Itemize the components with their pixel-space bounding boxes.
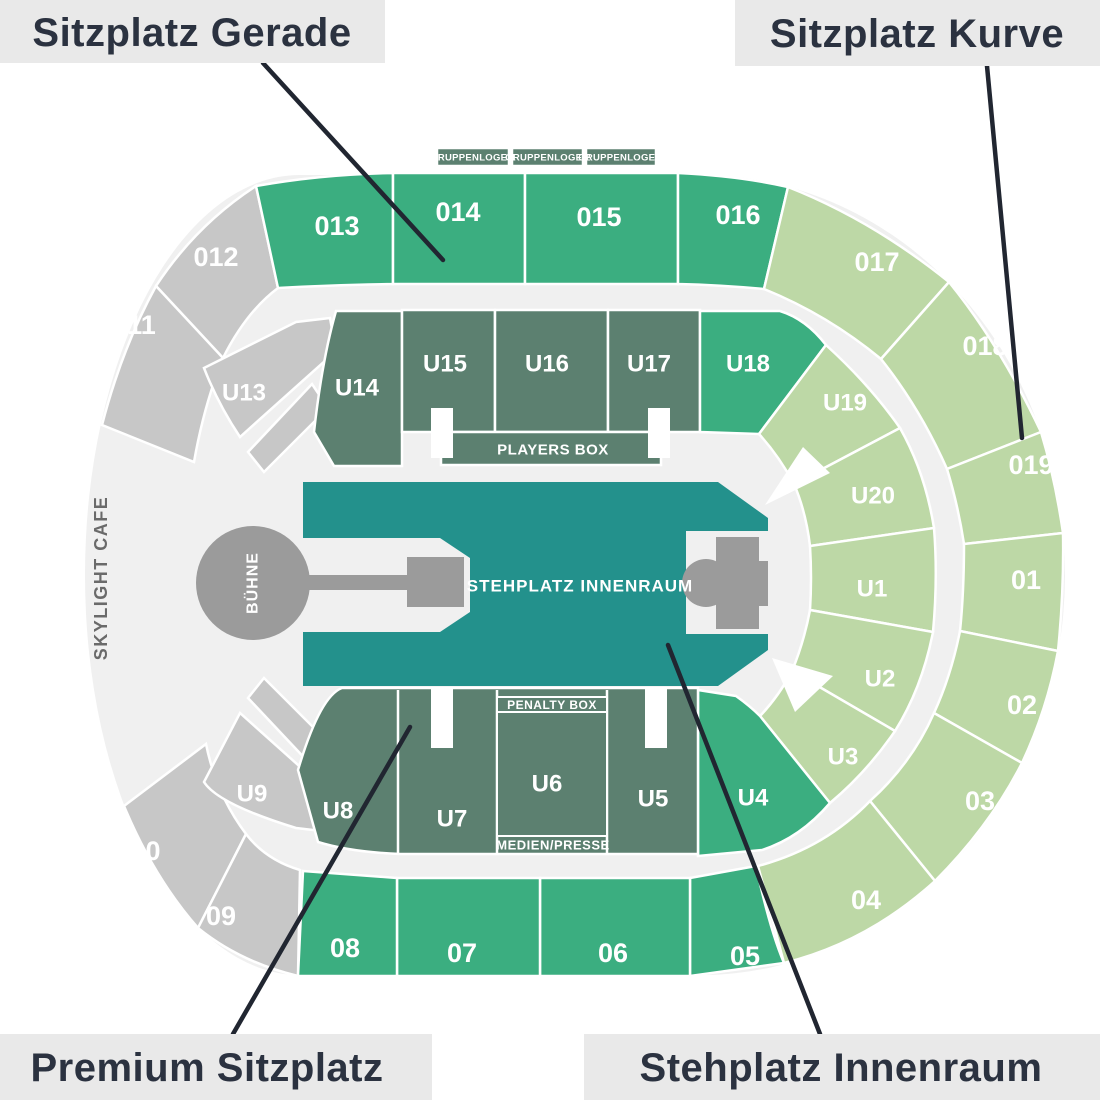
- vomitory-notch-top-left: [431, 408, 453, 458]
- section-012-label: 012: [193, 242, 238, 272]
- gruppenloge-3-label: GRUPPENLOGE 3: [578, 153, 664, 164]
- section-014-label: 014: [435, 197, 480, 227]
- stage-platform: [407, 557, 464, 607]
- section-U5-label: U5: [638, 786, 669, 813]
- section-U18-label: U18: [726, 351, 770, 378]
- section-U15-label: U15: [423, 351, 467, 378]
- section-U4-label: U4: [738, 785, 769, 812]
- legend-top-left-label: Sitzplatz Gerade: [32, 11, 351, 55]
- buehne-label: BÜHNE: [243, 552, 262, 614]
- section-U7-label: U7: [437, 806, 468, 833]
- players-box-label: PLAYERS BOX: [497, 442, 609, 459]
- medien-presse-label: MEDIEN/PRESSE: [496, 838, 609, 853]
- section-U9-label: U9: [237, 781, 268, 808]
- stehplatz-innenraum-label: STEHPLATZ INNENRAUM: [467, 577, 693, 596]
- section-U3-label: U3: [828, 744, 859, 771]
- gruppenloge-1-label: GRUPPENLOGE 1: [430, 153, 516, 164]
- section-01-label: 01: [1011, 565, 1041, 595]
- arena-seating-map: GRUPPENLOGE 1 GRUPPENLOGE 2 GRUPPENLOGE …: [0, 0, 1100, 1100]
- section-U13-label: U13: [222, 380, 266, 407]
- skylight-cafe-label: SKYLIGHT CAFE: [91, 496, 111, 661]
- section-018-label: 018: [962, 331, 1007, 361]
- foh-tower: [716, 537, 759, 629]
- section-U16-label: U16: [525, 351, 569, 378]
- penalty-box-label: PENALTY BOX: [507, 698, 597, 712]
- vomitory-notch-bottom-left: [431, 688, 453, 748]
- section-U2-label: U2: [865, 666, 896, 693]
- section-U8-label: U8: [323, 798, 354, 825]
- section-02-label: 02: [1007, 690, 1037, 720]
- section-015-label: 015: [576, 202, 621, 232]
- section-U20-label: U20: [851, 483, 895, 510]
- section-08-label: 08: [330, 933, 360, 963]
- section-011-label: 011: [112, 310, 156, 340]
- vomitory-notch-top-right: [648, 408, 670, 458]
- section-07-label: 07: [447, 938, 477, 968]
- legend-top-right-label: Sitzplatz Kurve: [770, 12, 1064, 56]
- section-06-label: 06: [598, 938, 628, 968]
- section-019-label: 019: [1008, 450, 1053, 480]
- section-U17-label: U17: [627, 351, 671, 378]
- vomitory-notch-bottom-right: [645, 688, 667, 748]
- stage-runway: [305, 575, 408, 590]
- section-016-label: 016: [715, 200, 760, 230]
- arena-svg: GRUPPENLOGE 1 GRUPPENLOGE 2 GRUPPENLOGE …: [0, 0, 1100, 1100]
- section-03-label: 03: [965, 786, 995, 816]
- section-013-label: 013: [314, 211, 359, 241]
- section-09-label: 09: [206, 901, 236, 931]
- section-010-label: 010: [115, 836, 160, 866]
- section-017-label: 017: [854, 247, 899, 277]
- section-U19-label: U19: [823, 390, 867, 417]
- legend-bottom-right-label: Stehplatz Innenraum: [640, 1046, 1043, 1090]
- section-U6-label: U6: [532, 771, 563, 798]
- section-U1-label: U1: [857, 576, 888, 603]
- foh-right-arm: [759, 561, 768, 606]
- section-U14-label: U14: [335, 375, 380, 402]
- legend-bottom-left-label: Premium Sitzplatz: [30, 1046, 383, 1090]
- section-05-label: 05: [730, 941, 760, 971]
- section-04-label: 04: [851, 885, 881, 915]
